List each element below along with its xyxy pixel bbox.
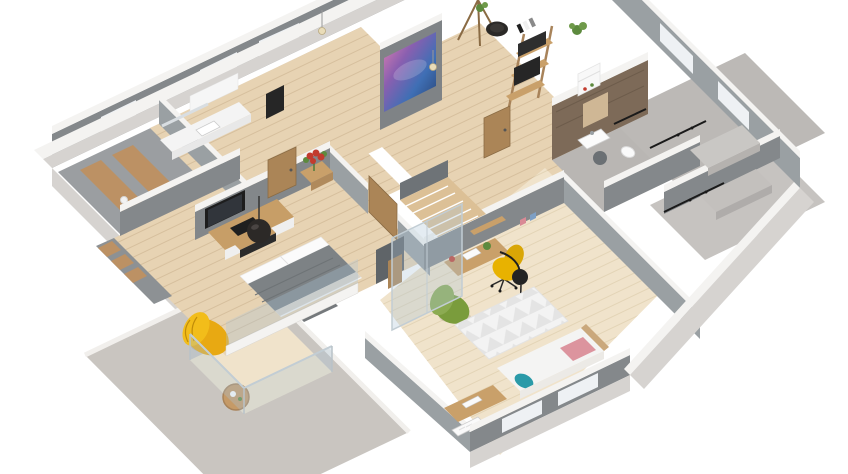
laundry-basket xyxy=(593,151,607,165)
floorplan-render xyxy=(0,0,848,474)
saucer-chair xyxy=(486,22,508,37)
floorplan-svg xyxy=(0,0,848,474)
